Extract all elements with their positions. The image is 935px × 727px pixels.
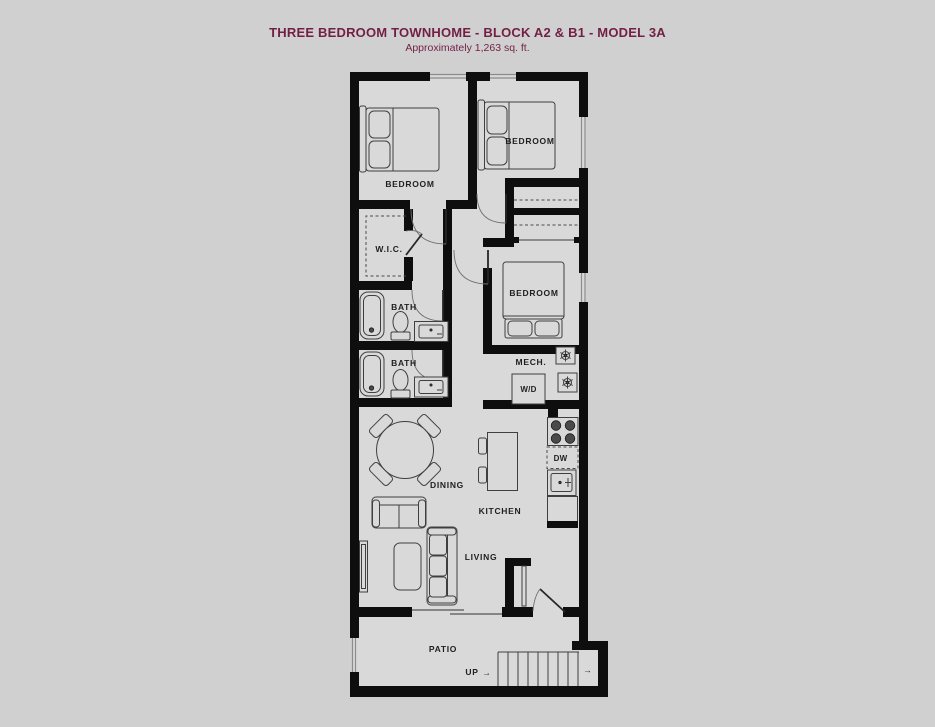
dining-table xyxy=(377,422,434,479)
bedroom3-label: BEDROOM xyxy=(509,288,558,298)
sofa-arm xyxy=(428,528,456,535)
wall-segment xyxy=(579,72,588,117)
wall-segment xyxy=(563,607,579,617)
toilet-tank xyxy=(391,390,410,398)
wall-segment xyxy=(483,238,514,247)
wall-segment xyxy=(502,607,533,617)
bed-pillow xyxy=(508,321,532,336)
bedroom2-bed xyxy=(478,100,555,170)
mech-label: MECH. xyxy=(516,357,547,367)
bedroom1-bed xyxy=(360,106,440,172)
wall-segment xyxy=(404,257,413,281)
gear-hub xyxy=(566,381,569,384)
stairs-up-label: UP xyxy=(465,667,478,677)
kitchen-island xyxy=(488,433,518,491)
bath2-label: BATH xyxy=(391,358,417,368)
kitchen-sink xyxy=(548,470,577,496)
wall-segment xyxy=(350,72,430,81)
loveseat-arm xyxy=(373,500,380,527)
bath1-label: BATH xyxy=(391,302,417,312)
toilet-bowl xyxy=(393,312,408,333)
stair-nub xyxy=(514,237,519,243)
bed-headboard xyxy=(360,106,367,172)
bed-headboard xyxy=(478,100,485,170)
tv xyxy=(360,541,368,592)
stove-burner xyxy=(565,434,575,444)
bed-pillow xyxy=(369,111,390,138)
coffee-table xyxy=(394,543,421,590)
wall-segment xyxy=(516,72,588,81)
wall-segment xyxy=(468,81,477,209)
patio-label: PATIO xyxy=(429,644,457,654)
sink-drain xyxy=(559,481,561,483)
washer-dryer-label: W/D xyxy=(520,385,536,394)
loveseat-arm xyxy=(419,500,426,527)
sofa-cushion xyxy=(430,535,447,555)
toilet-tank xyxy=(391,332,410,340)
loveseat xyxy=(372,497,426,528)
gear-hub xyxy=(564,354,567,357)
tub-drain xyxy=(369,328,373,332)
floor-plan-drawing: BEDROOM BEDROOM BEDROOM W.I.C. BATH BATH… xyxy=(0,0,935,727)
kitchen-label: KITCHEN xyxy=(479,506,522,516)
dishwasher-label: DW xyxy=(554,454,568,463)
bed-pillow xyxy=(535,321,559,336)
faucet-dot xyxy=(430,329,432,331)
stove-burner xyxy=(551,434,561,444)
wall-segment xyxy=(350,607,412,617)
tub-drain xyxy=(369,386,373,390)
exit-arrow-icon: → xyxy=(583,665,592,675)
up-arrow-icon: → xyxy=(482,668,491,678)
wall-segment xyxy=(505,178,588,187)
island-stool xyxy=(479,438,487,454)
wall-segment xyxy=(514,208,579,215)
living-label: LIVING xyxy=(465,552,498,562)
stove-burner xyxy=(565,421,575,431)
sofa-cushion xyxy=(430,556,447,576)
wall-segment xyxy=(350,200,410,209)
stair-nub xyxy=(574,237,579,243)
stove xyxy=(548,418,579,446)
vanity-sink xyxy=(419,381,443,394)
equipment-gear-icon xyxy=(556,347,575,364)
toilet-bowl xyxy=(393,370,408,391)
wic-label: W.I.C. xyxy=(375,244,402,254)
kitchen-counter xyxy=(548,497,578,525)
dining-label: DINING xyxy=(430,480,464,490)
wall-segment xyxy=(350,72,359,638)
stove-burner xyxy=(551,421,561,431)
dining-set xyxy=(368,413,441,486)
bed-pillow xyxy=(487,137,507,165)
wall-segment xyxy=(350,686,608,697)
equipment-gear-icon xyxy=(558,373,577,392)
wall-segment xyxy=(466,72,490,81)
wall-segment xyxy=(350,281,412,290)
bed-pillow xyxy=(487,106,507,134)
floor-plan-page: THREE BEDROOM TOWNHOME - BLOCK A2 & B1 -… xyxy=(0,0,935,727)
wall-segment xyxy=(505,558,531,566)
wall-segment xyxy=(350,398,452,407)
sofa xyxy=(427,527,457,605)
bed-pillow xyxy=(369,141,390,168)
counter-end-wall xyxy=(547,521,578,528)
wall-segment xyxy=(443,209,452,401)
faucet-dot xyxy=(430,384,432,386)
tv-body xyxy=(360,541,368,592)
wall-segment xyxy=(350,341,452,350)
island-stool xyxy=(479,467,487,483)
bedroom1-label: BEDROOM xyxy=(385,179,434,189)
wall-segment xyxy=(548,404,558,418)
sofa-cushion xyxy=(430,577,447,597)
bedroom3-bed xyxy=(503,262,564,338)
bedroom2-label: BEDROOM xyxy=(505,136,554,146)
